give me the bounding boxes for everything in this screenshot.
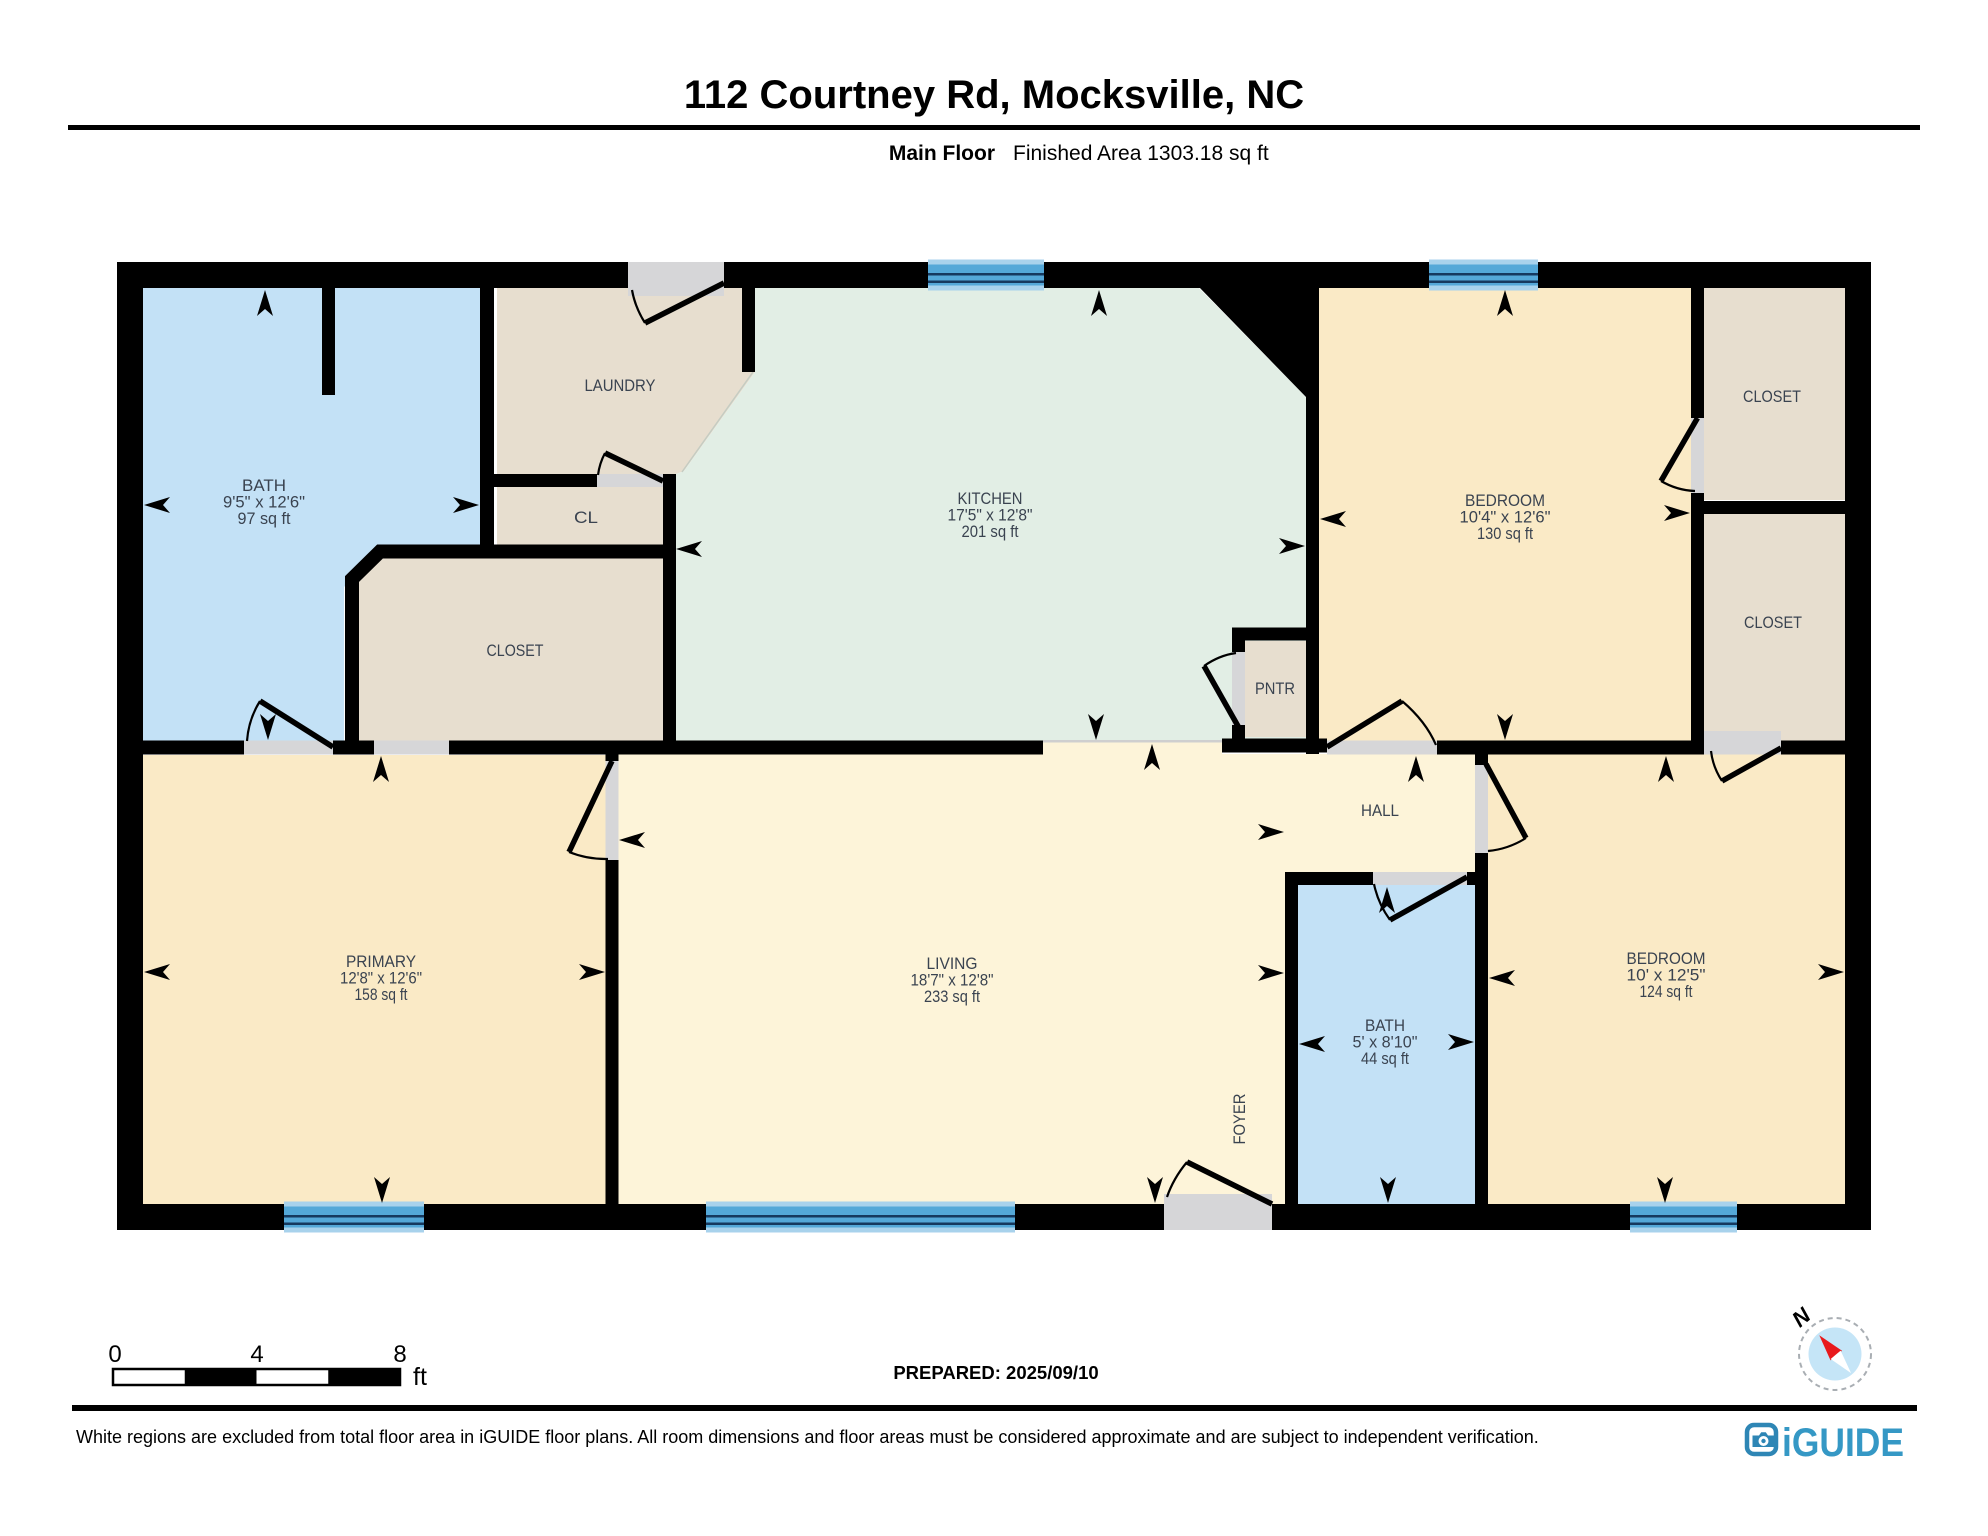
- svg-text:CLOSET: CLOSET: [487, 641, 544, 660]
- svg-text:0: 0: [108, 1341, 121, 1368]
- svg-text:PREPARED: 2025/09/10: PREPARED: 2025/09/10: [893, 1362, 1098, 1383]
- svg-text:iGUIDE: iGUIDE: [1782, 1421, 1904, 1465]
- svg-text:Finished Area 1303.18 sq ft: Finished Area 1303.18 sq ft: [1013, 142, 1269, 165]
- svg-text:4: 4: [250, 1341, 263, 1368]
- svg-text:8: 8: [393, 1341, 406, 1368]
- svg-text:ft: ft: [413, 1363, 427, 1391]
- svg-text:LAUNDRY: LAUNDRY: [585, 376, 656, 395]
- svg-text:FOYER: FOYER: [1230, 1094, 1249, 1145]
- svg-text:Main Floor: Main Floor: [889, 142, 995, 165]
- svg-text:CL: CL: [574, 508, 598, 527]
- svg-text:White regions are excluded fro: White regions are excluded from total fl…: [76, 1427, 1539, 1447]
- svg-text:HALL: HALL: [1361, 801, 1399, 820]
- svg-text:112 Courtney Rd, Mocksville, N: 112 Courtney Rd, Mocksville, NC: [684, 73, 1304, 117]
- svg-text:CLOSET: CLOSET: [1744, 613, 1802, 632]
- svg-text:CLOSET: CLOSET: [1743, 387, 1801, 406]
- svg-text:PNTR: PNTR: [1255, 679, 1295, 698]
